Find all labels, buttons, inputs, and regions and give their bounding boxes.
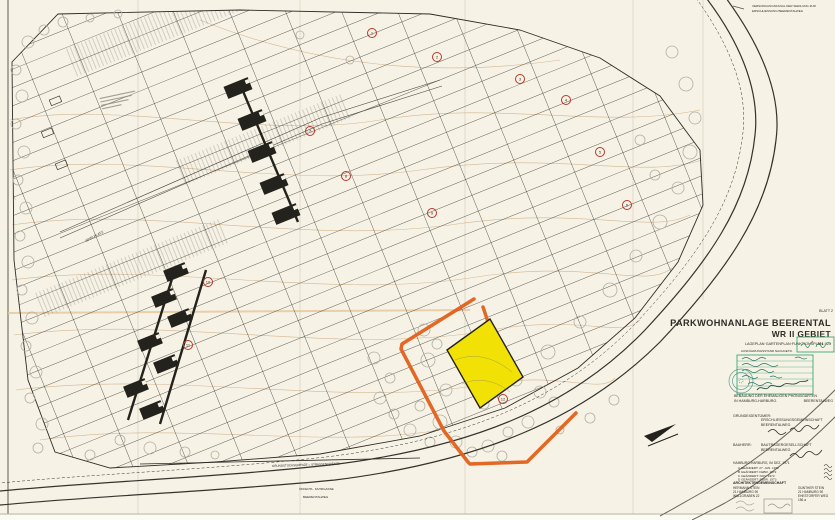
corner-note-line2: ERSCHLIESSUNG BEERENTALWEG — [752, 9, 804, 13]
svg-text:10: 10 — [206, 279, 211, 284]
architect-left-column: HERMANN STEIN21 HAMBURG 90WALLGRABEN 22 — [733, 486, 760, 498]
client-name1: BAUTRÄGERGESELLSCHAFT — [761, 443, 813, 447]
revision-list: A GEÄNDERT: 27. JAN. 1972B GEÄNDERT: FEB… — [738, 466, 779, 482]
project-location: BEERENTALWEG — [804, 399, 834, 403]
project-line2: IN HAMBURG-HARBURG. — [734, 399, 777, 403]
owner-name1: ERSCHLIESSUNGSGEMEINSCHAFT — [761, 418, 824, 422]
svg-text:12: 12 — [501, 396, 506, 401]
sheet-number: BLATT 2 — [819, 309, 833, 313]
owner-name2: BEERENTALWEG — [761, 423, 791, 427]
project-line1: BEBAUUNG DER EHEMALIGEN PHÖNIXGÄRTEN — [734, 394, 817, 398]
client-label: BAUHERR: — [733, 443, 752, 447]
client-name2: BEERENTALWEG — [761, 448, 791, 452]
plan-subtitle: WR II GEBIET — [772, 329, 832, 339]
architect-line: 156 a — [798, 498, 806, 502]
scanned-site-plan-sheet: 123456789101112 SPIELPLATZ GRUNDSTÜCKSGR… — [0, 0, 835, 520]
road-type-label: ÖFFENTL. FAHRGASSE — [299, 487, 334, 491]
plan-note: AUSFÜHRUNGSSTAND NACHGETR. — [741, 349, 793, 353]
street-name-label: BEERENTALWEG — [303, 495, 329, 499]
architects-label: ARCHITEKTENGEMEINSCHAFT — [733, 481, 787, 485]
corner-note-line1: VERSORGUNGSKANAL DER SIEDLUNG ZUR — [752, 4, 817, 8]
architect-line: WALLGRABEN 22 — [733, 494, 760, 498]
plan-title: PARKWOHNANLAGE BEERENTAL — [670, 318, 831, 328]
site-plan-drawing: 123456789101112 SPIELPLATZ GRUNDSTÜCKSGR… — [0, 0, 835, 520]
date-line: HAMBURG-HARBURG, IM DEZ. 1971 — [733, 461, 790, 465]
